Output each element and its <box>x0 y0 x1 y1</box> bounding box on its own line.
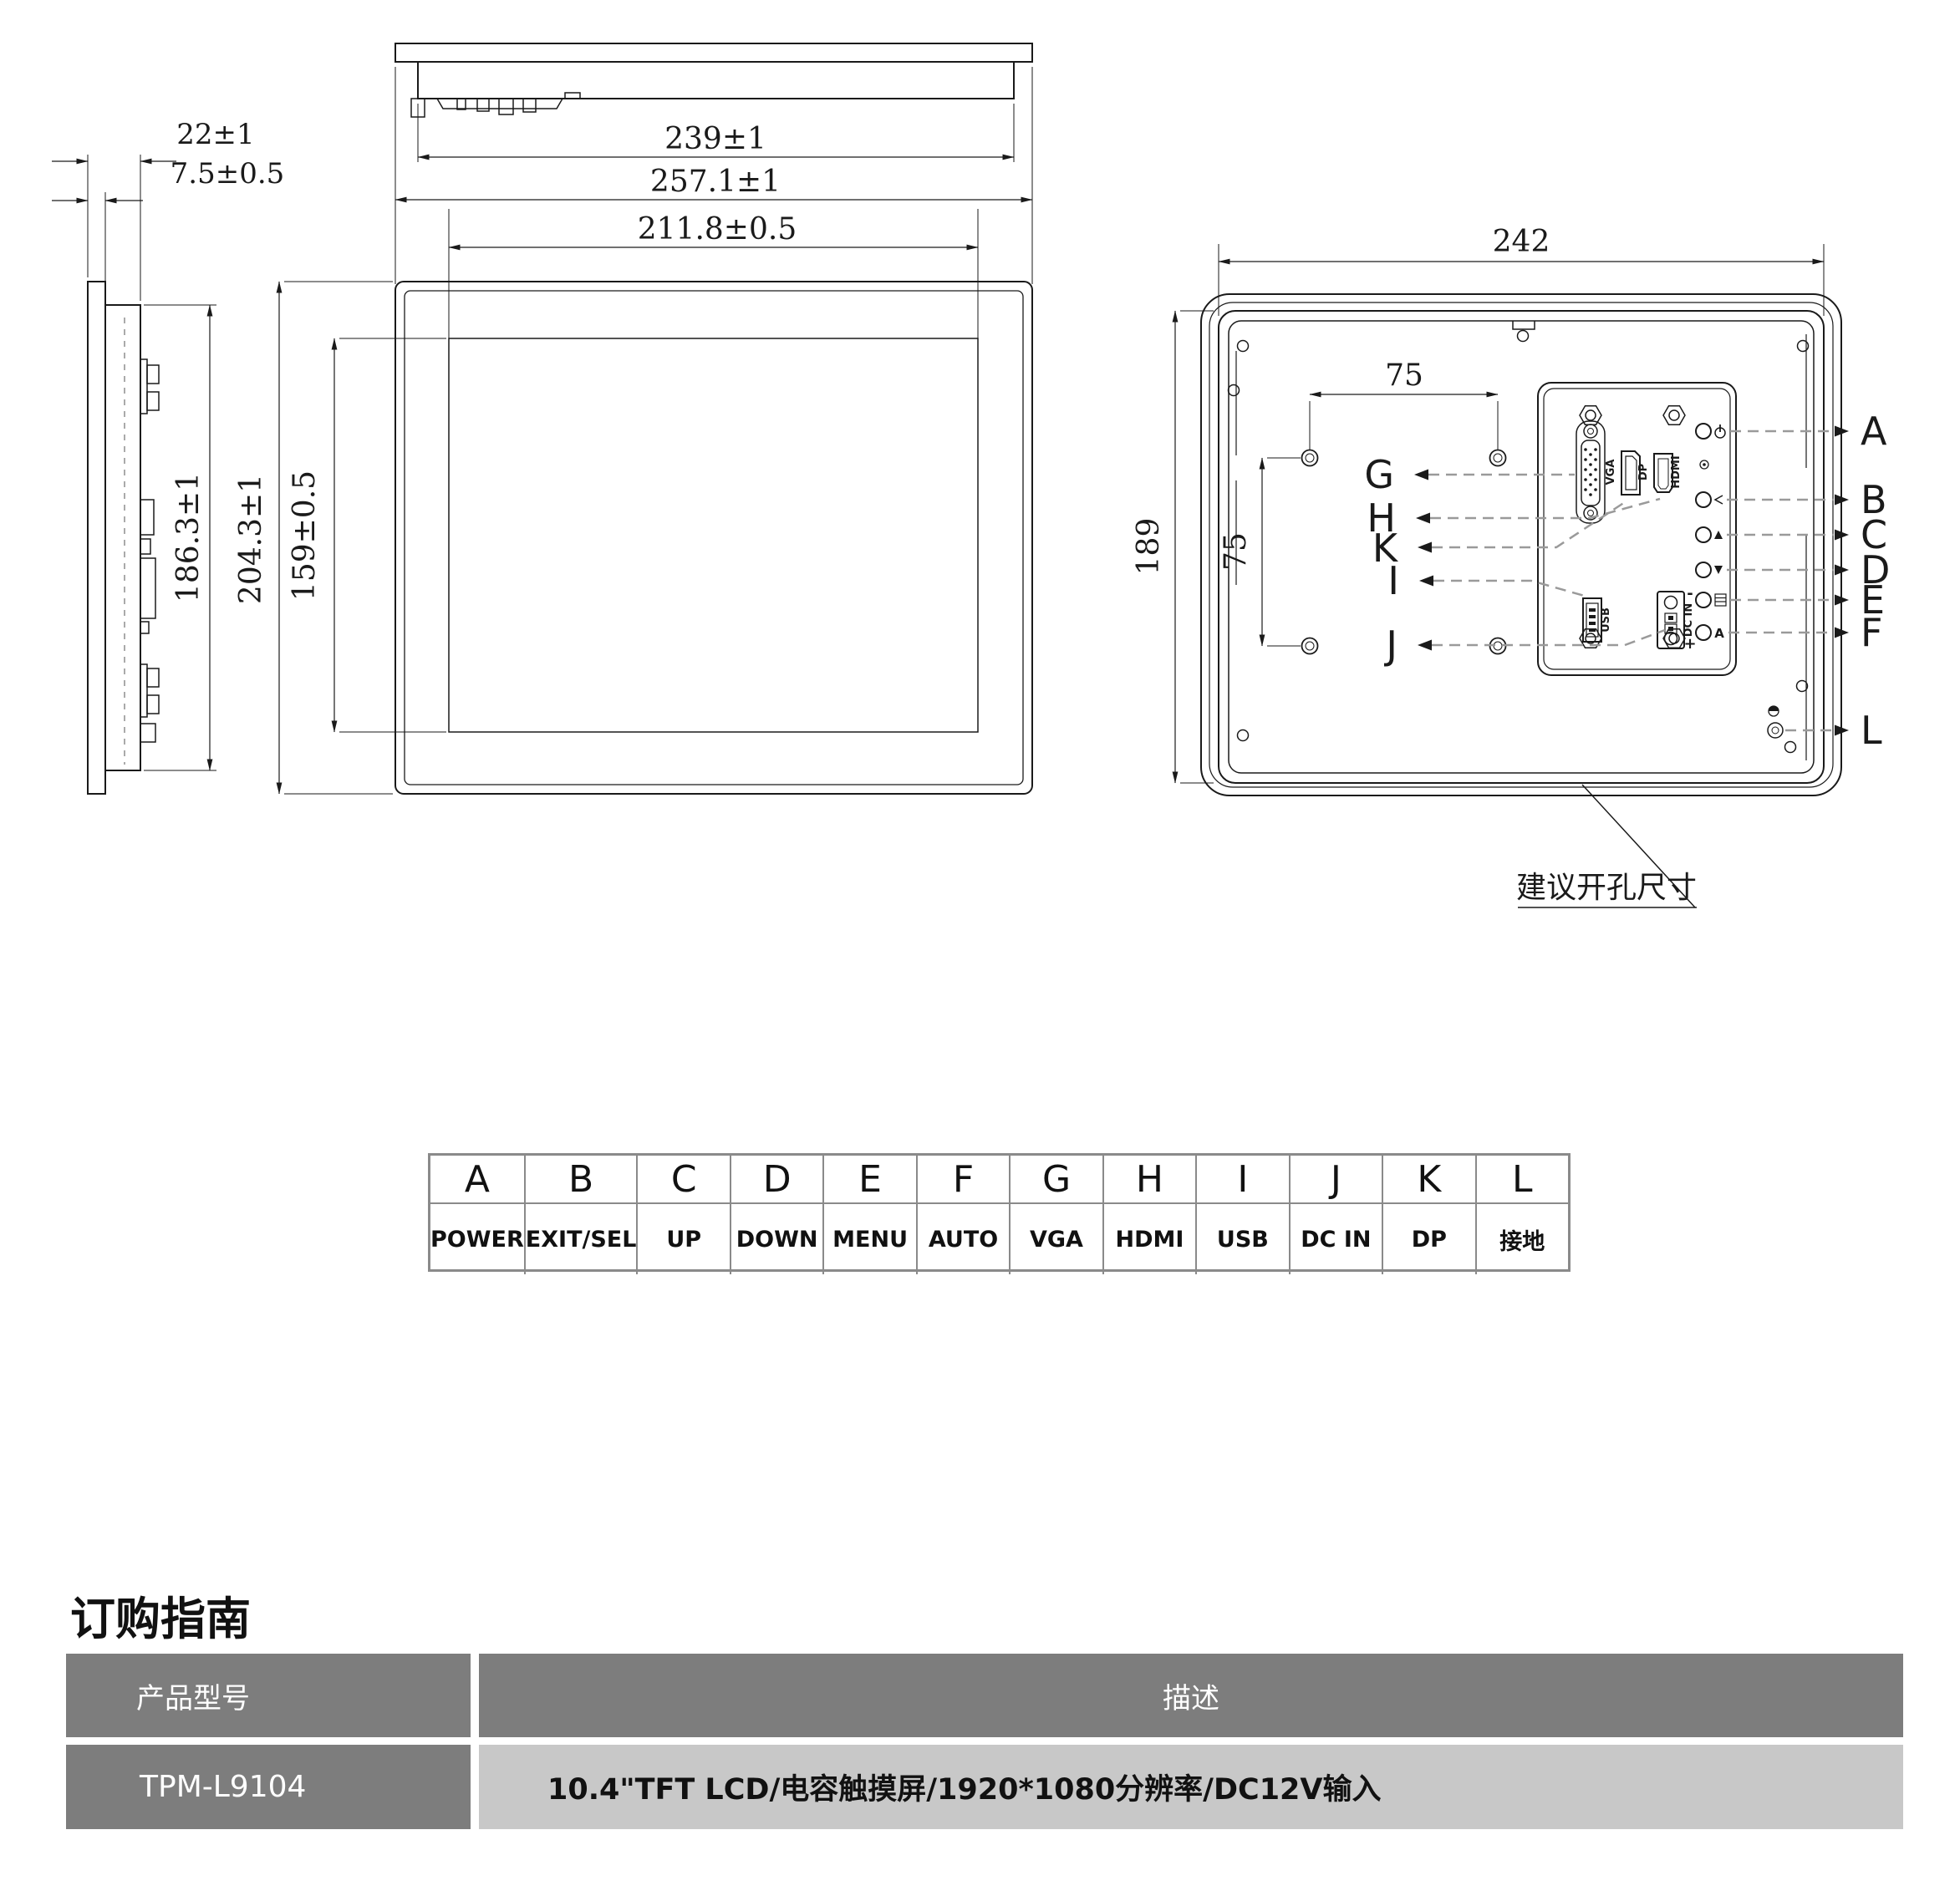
back-view-outline <box>1201 294 1841 795</box>
front-view <box>395 282 1032 794</box>
side-view-glass <box>88 282 105 794</box>
right-callouts: A B C D E F L <box>1727 409 1890 753</box>
connector-panel: VGA DP HDMI USB <box>1538 383 1736 675</box>
dim-chassis-width: 239±1 <box>664 122 766 156</box>
legend-header: D <box>730 1156 822 1202</box>
callout-G: G <box>1364 452 1394 497</box>
side-view: 22±1 7.5±0.5 186.3±1 204.3±1 159±0.5 <box>52 118 446 794</box>
dim-vesa-horizontal: 75 <box>1385 358 1423 393</box>
dp-port: DP <box>1621 451 1650 495</box>
top-view-body <box>418 62 1014 99</box>
ordering-desc-cell: 10.4"TFT LCD/电容触摸屏/1920*1080分辨率/DC12V输入 <box>479 1745 1903 1829</box>
vesa-holes <box>1302 450 1506 654</box>
power-button <box>1696 424 1711 439</box>
back-view: 242 189 75 75 <box>1132 225 1890 907</box>
dim-depth-total: 22±1 <box>176 118 254 151</box>
dc-minus-label: - <box>1687 585 1693 602</box>
left-callouts: G H K I J <box>1364 452 1665 668</box>
connector-legend-table: A B C D E F G H I J K L POWER EXIT/SEL U… <box>428 1153 1571 1272</box>
ordering-model-header: 产品型号 <box>66 1654 471 1737</box>
auto-mark-icon: A <box>1714 626 1724 641</box>
dc-in-label: DC IN <box>1683 603 1695 638</box>
callout-L: L <box>1861 708 1882 753</box>
vga-label: VGA <box>1605 460 1617 485</box>
front-view-outline <box>395 282 1032 794</box>
legend-header: J <box>1289 1156 1382 1202</box>
legend-header: I <box>1195 1156 1288 1202</box>
legend-header: B <box>524 1156 637 1202</box>
dim-active-height: 159±0.5 <box>288 470 322 601</box>
callout-F: F <box>1861 610 1882 655</box>
dim-cutout-width: 242 <box>1493 225 1550 259</box>
legend-value: EXIT/SEL <box>524 1202 637 1274</box>
dim-glass-height: 204.3±1 <box>234 474 268 604</box>
screw-holes <box>1229 331 1809 753</box>
exit-sel-button <box>1696 492 1711 507</box>
front-view-active-area <box>449 338 978 732</box>
callout-A: A <box>1861 409 1887 454</box>
side-view-chassis <box>105 305 140 770</box>
dim-vesa-vertical: 75 <box>1219 532 1253 571</box>
dim-chassis-height: 186.3±1 <box>171 472 206 602</box>
legend-value: DOWN <box>730 1202 822 1274</box>
legend-value: 接地 <box>1475 1202 1568 1274</box>
osd-buttons: A <box>1696 424 1726 641</box>
legend-value: USB <box>1195 1202 1288 1274</box>
exit-mark-icon <box>1715 496 1723 504</box>
ground-screw <box>1768 706 1783 738</box>
callout-J: J <box>1383 623 1397 668</box>
dim-glass-width: 257.1±1 <box>650 165 781 199</box>
legend-value: DC IN <box>1289 1202 1382 1274</box>
vga-port: VGA <box>1576 421 1617 523</box>
dp-label: DP <box>1637 464 1650 480</box>
dim-depth-front: 7.5±0.5 <box>171 157 285 191</box>
ordering-model-cell: TPM-L9104 <box>66 1745 471 1829</box>
hdmi-port: HDMI <box>1654 454 1683 492</box>
legend-header: C <box>636 1156 729 1202</box>
cutout-note: 建议开孔尺寸 <box>1516 785 1697 907</box>
up-button <box>1696 527 1711 542</box>
menu-icon <box>1715 594 1726 606</box>
technical-drawing: 239±1 257.1±1 211.8±0.5 22±1 7.5±0 <box>0 0 1960 986</box>
dc-plus-label: + <box>1683 635 1696 653</box>
up-mark-icon <box>1714 531 1723 539</box>
menu-button <box>1696 592 1711 607</box>
legend-value: POWER <box>430 1202 524 1274</box>
dim-cutout-height: 189 <box>1132 518 1166 576</box>
ordering-guide-title: 订购指南 <box>70 1582 251 1648</box>
legend-header: G <box>1009 1156 1102 1202</box>
legend-value: VGA <box>1009 1202 1102 1274</box>
legend-header: A <box>430 1156 524 1202</box>
usb-label: USB <box>1600 607 1612 633</box>
dim-active-width: 211.8±0.5 <box>638 212 797 247</box>
legend-value: UP <box>636 1202 729 1274</box>
legend-value: MENU <box>822 1202 915 1274</box>
legend-header: E <box>822 1156 915 1202</box>
top-view: 239±1 257.1±1 211.8±0.5 <box>395 43 1032 341</box>
legend-header: L <box>1475 1156 1568 1202</box>
hdmi-label: HDMI <box>1670 455 1683 488</box>
ordering-desc-header: 描述 <box>479 1654 1903 1737</box>
auto-button <box>1696 625 1711 640</box>
legend-header: H <box>1102 1156 1195 1202</box>
cutout-note-text: 建议开孔尺寸 <box>1516 871 1697 905</box>
legend-value: HDMI <box>1102 1202 1195 1274</box>
legend-value: DP <box>1382 1202 1474 1274</box>
legend-header: F <box>916 1156 1009 1202</box>
down-mark-icon <box>1714 566 1723 574</box>
legend-header: K <box>1382 1156 1474 1202</box>
legend-value: AUTO <box>916 1202 1009 1274</box>
top-view-glass <box>395 43 1032 62</box>
power-icon <box>1715 424 1725 438</box>
down-button <box>1696 562 1711 577</box>
callout-I: I <box>1387 558 1399 603</box>
